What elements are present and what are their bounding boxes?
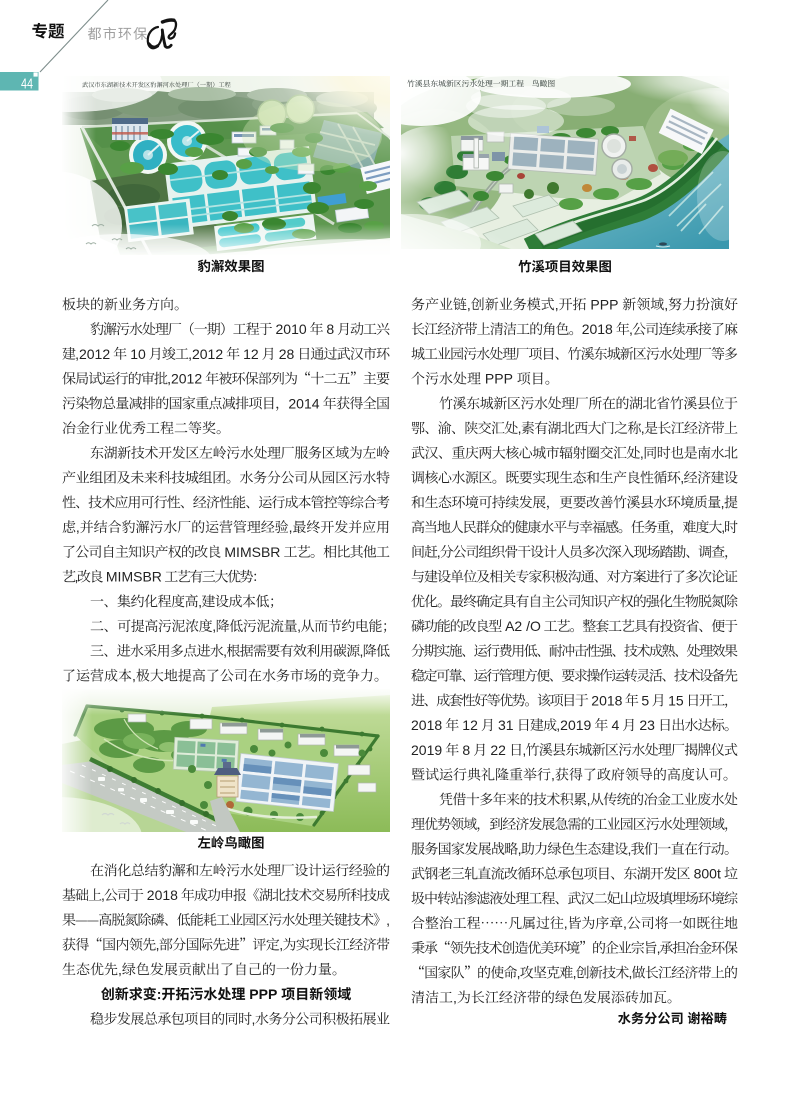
svg-text:23: 23 <box>639 717 655 733</box>
svg-text:,: , <box>555 296 559 312</box>
svg-text:,: , <box>623 915 627 931</box>
svg-text:,: , <box>223 643 227 659</box>
svg-text:,: , <box>680 470 684 486</box>
svg-text:10: 10 <box>130 346 146 362</box>
svg-text:,2012: ,2012 <box>188 346 223 362</box>
svg-text:28: 28 <box>279 346 295 362</box>
svg-text:,: , <box>657 940 661 956</box>
svg-text:15: 15 <box>668 692 684 708</box>
svg-text:2014: 2014 <box>288 395 319 411</box>
svg-text:,: , <box>118 961 122 977</box>
svg-text:,: , <box>289 519 293 535</box>
svg-text:,: , <box>252 1011 256 1027</box>
svg-text:,: , <box>198 593 202 609</box>
svg-text:12: 12 <box>243 346 259 362</box>
svg-text:,: , <box>518 841 522 857</box>
svg-text:,: , <box>437 544 441 560</box>
svg-text:,: , <box>517 965 521 981</box>
svg-text:2019: 2019 <box>411 742 442 758</box>
svg-text:MIMSBR: MIMSBR <box>106 569 162 585</box>
svg-text:,: , <box>132 668 136 684</box>
svg-text:8: 8 <box>326 321 334 337</box>
svg-text:4: 4 <box>612 717 620 733</box>
svg-text:,: , <box>453 989 457 1005</box>
svg-text:,: , <box>629 965 633 981</box>
svg-text:,: , <box>518 420 522 436</box>
svg-text:,: , <box>522 742 526 758</box>
svg-text:,: , <box>564 915 568 931</box>
svg-text:A2 /O: A2 /O <box>505 618 541 634</box>
svg-text::: : <box>157 986 162 1002</box>
svg-text:,: , <box>75 569 79 585</box>
svg-text:,: , <box>76 519 80 535</box>
svg-text:,: , <box>721 494 725 510</box>
svg-text:,2019: ,2019 <box>556 717 591 733</box>
svg-text:800t: 800t <box>694 866 721 882</box>
svg-text:,: , <box>721 519 725 535</box>
svg-text:,: , <box>551 767 555 783</box>
svg-text:MIMSBR: MIMSBR <box>224 544 280 560</box>
svg-text:,: , <box>640 445 644 461</box>
svg-text:,: , <box>641 420 645 436</box>
svg-text:,: , <box>156 937 160 953</box>
svg-text:PPP: PPP <box>590 296 618 312</box>
svg-text:2010: 2010 <box>276 321 307 337</box>
svg-text:,: , <box>360 643 364 659</box>
svg-text:,: , <box>573 965 577 981</box>
svg-text:PPP: PPP <box>485 371 513 387</box>
svg-text:5: 5 <box>641 692 649 708</box>
svg-text:31: 31 <box>498 717 514 733</box>
svg-text:2018: 2018 <box>582 321 613 337</box>
svg-text:2018: 2018 <box>591 692 622 708</box>
svg-text:,2012: ,2012 <box>75 346 110 362</box>
svg-text:2018: 2018 <box>411 717 442 733</box>
svg-text:,: , <box>587 791 591 807</box>
svg-text:,: , <box>629 321 633 337</box>
svg-text:,: , <box>212 618 216 634</box>
svg-text:,2012: ,2012 <box>167 371 202 387</box>
svg-text:,: , <box>386 912 390 928</box>
svg-text:22: 22 <box>490 742 506 758</box>
svg-text:,: , <box>628 841 632 857</box>
svg-text:2018: 2018 <box>147 887 178 903</box>
svg-text:,: , <box>664 296 668 312</box>
svg-text:,: , <box>467 296 471 312</box>
svg-text:PPP: PPP <box>249 986 277 1002</box>
svg-text:8: 8 <box>462 742 470 758</box>
svg-text:,: , <box>279 937 283 953</box>
svg-text:,: , <box>101 887 105 903</box>
svg-text:12: 12 <box>462 717 478 733</box>
svg-text:,: , <box>297 618 301 634</box>
